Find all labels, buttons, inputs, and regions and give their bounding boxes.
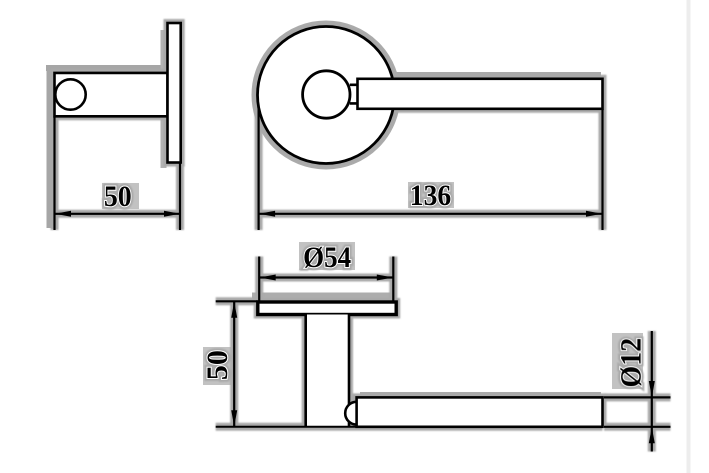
- svg-text:136: 136: [410, 179, 451, 212]
- svg-text:50: 50: [104, 180, 132, 213]
- svg-text:50: 50: [201, 350, 234, 380]
- svg-text:Ø54: Ø54: [303, 242, 351, 275]
- svg-text:Ø12: Ø12: [615, 338, 648, 388]
